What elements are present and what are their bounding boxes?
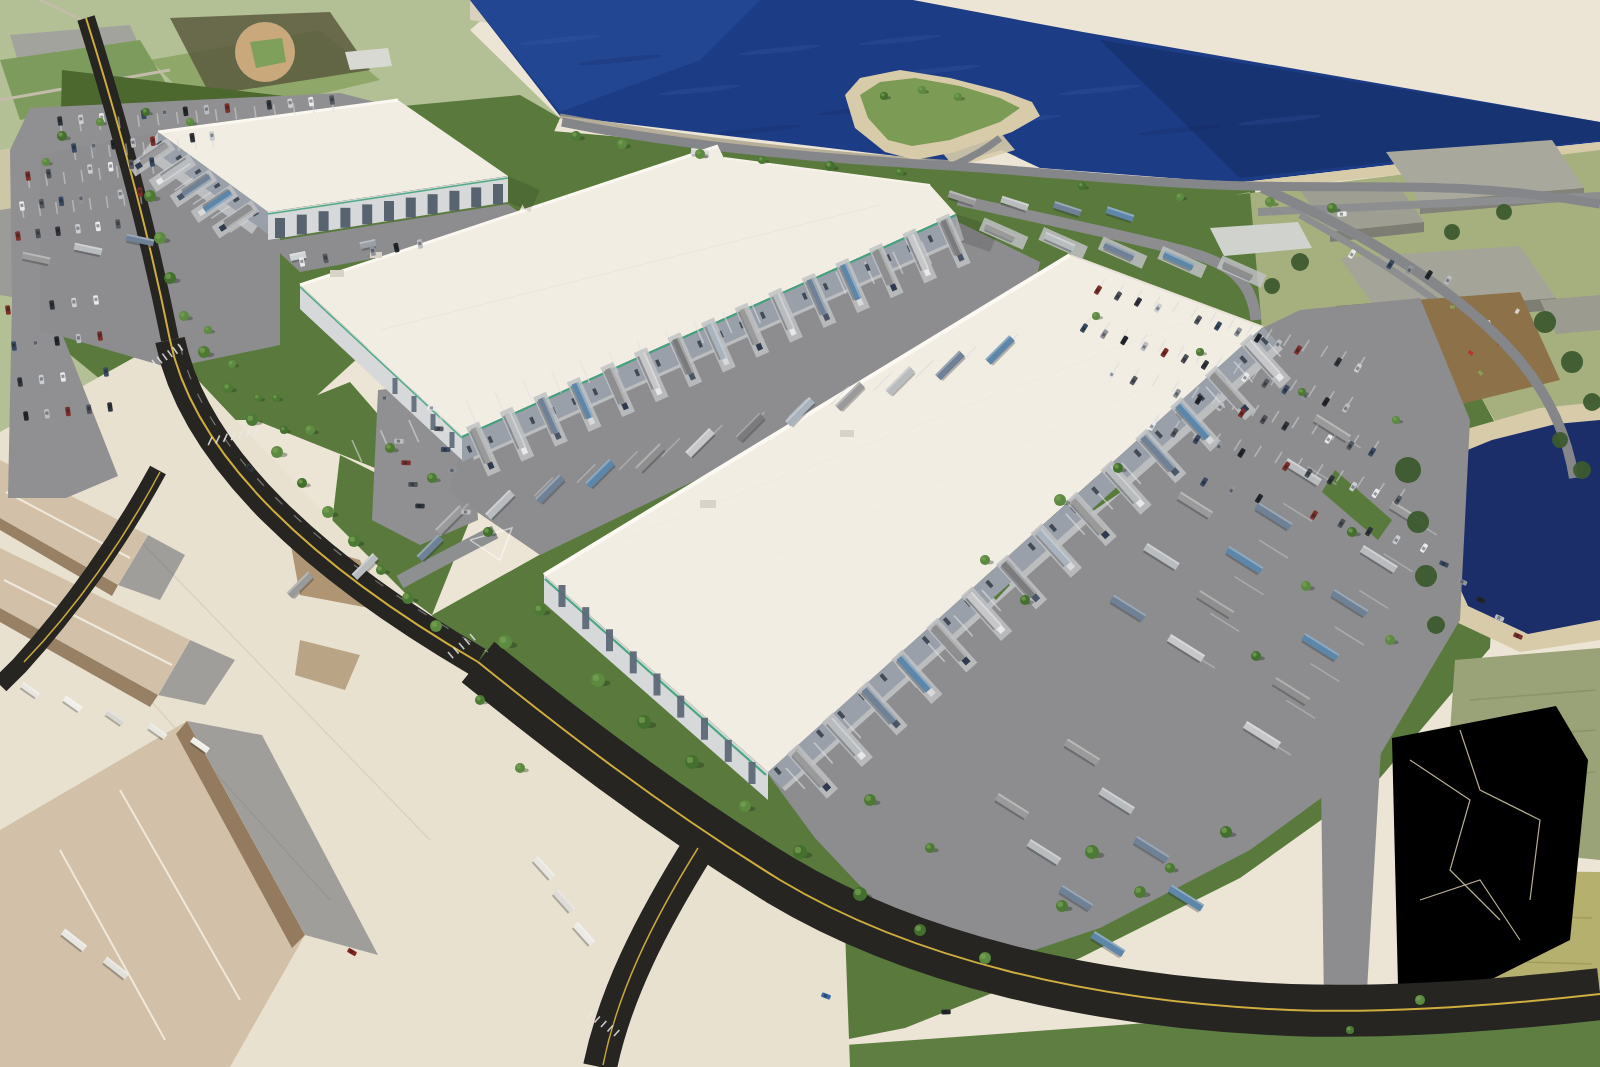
tree-cluster: [1534, 311, 1556, 333]
parked-car: [408, 482, 418, 487]
parked-car: [941, 1009, 951, 1014]
tree-cluster: [1561, 351, 1583, 373]
parked-car: [415, 503, 425, 508]
parked-car: [441, 447, 451, 452]
tree-cluster: [1573, 461, 1591, 479]
parked-car: [401, 460, 411, 465]
tree-cluster: [1552, 432, 1568, 448]
parked-car: [427, 405, 437, 410]
parked-car: [448, 468, 458, 473]
tree-cluster: [1407, 511, 1429, 533]
scrap-item: [1450, 305, 1455, 309]
tree-cluster: [1496, 204, 1512, 220]
parked-car: [380, 395, 390, 400]
tree-cluster: [1291, 253, 1309, 271]
aerial-rendering: [0, 0, 1600, 1067]
parked-car: [394, 439, 404, 444]
rendering-canvas: [0, 0, 1600, 1067]
tree-cluster: [1427, 616, 1445, 634]
parked-car: [1337, 211, 1347, 216]
parked-car: [461, 509, 471, 514]
tree-cluster: [1444, 224, 1460, 240]
tree-cluster: [1395, 457, 1421, 483]
tree-cluster: [1415, 565, 1437, 587]
parked-car: [434, 426, 444, 431]
tree-cluster: [1264, 278, 1280, 294]
